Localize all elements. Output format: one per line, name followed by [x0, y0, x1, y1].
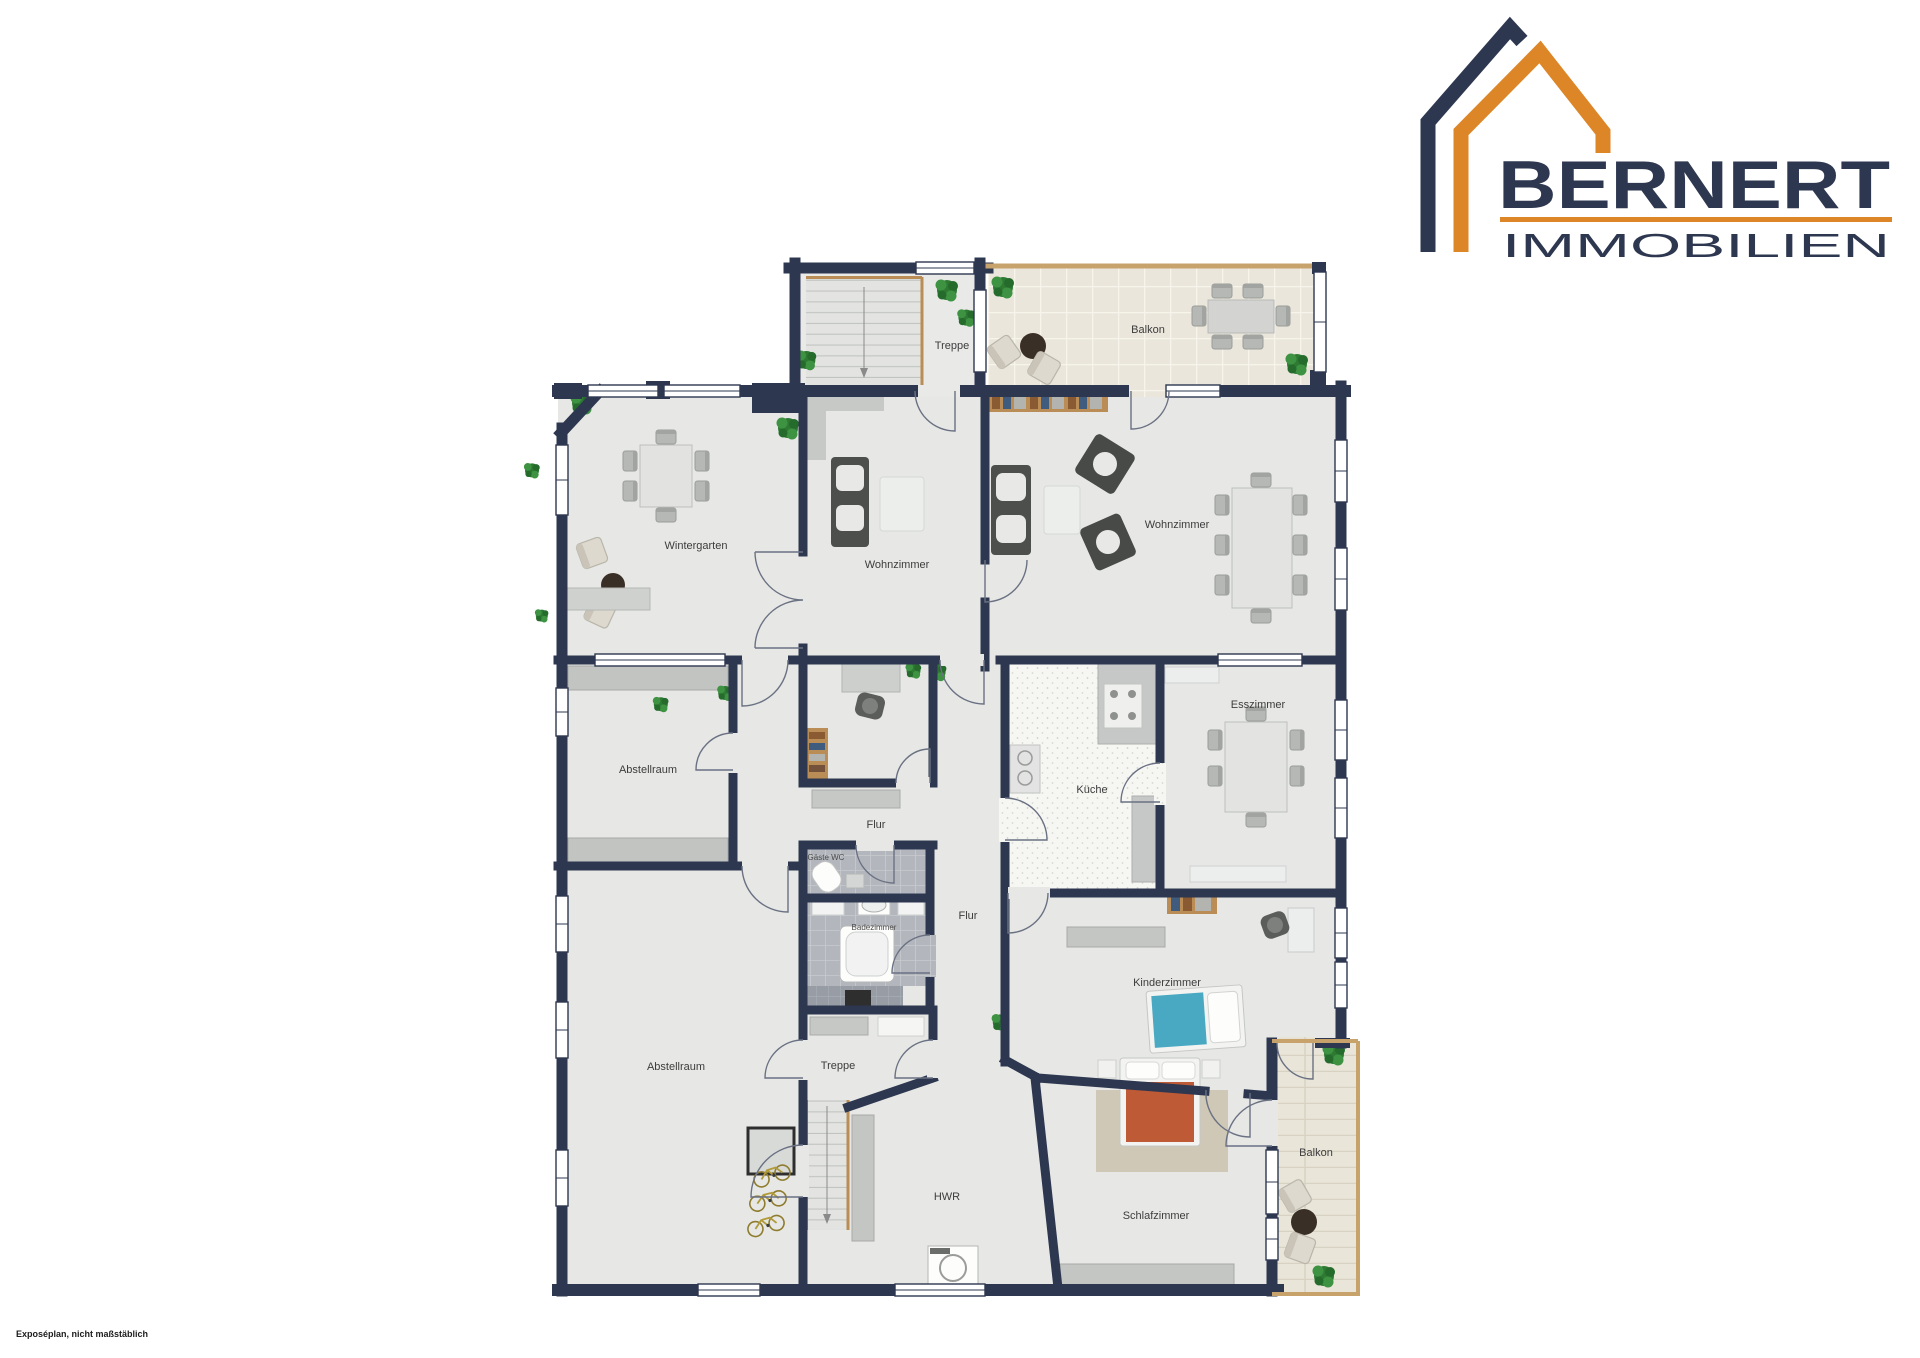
room-label-hwr: HWR	[934, 1191, 960, 1203]
room-label-gaeste-wc: Gäste WC	[808, 853, 845, 862]
brand-logo: BERNERT IMMOBILIEN	[1428, 28, 1892, 264]
room-label-abstellraum-mid: Abstellraum	[619, 764, 677, 776]
plant-icon	[535, 609, 549, 622]
plant-icon	[1313, 1266, 1336, 1288]
plant-icon	[936, 280, 959, 302]
room-label-badezimmer: Badezimmer	[852, 923, 897, 932]
room-label-abstellraum-bottom: Abstellraum	[647, 1061, 705, 1073]
room-label-esszimmer: Esszimmer	[1231, 699, 1286, 711]
plant-icon	[905, 663, 921, 678]
wintergarten-sideboard	[565, 588, 650, 610]
room-label-wohnzimmer-left: Wohnzimmer	[865, 559, 930, 571]
landing-furniture	[810, 1017, 924, 1036]
room-label-balkon-top: Balkon	[1131, 324, 1165, 336]
floorplan-page: BERNERT IMMOBILIEN	[0, 0, 1920, 1358]
storage-shelf	[568, 666, 728, 690]
room-label-treppe-bottom: Treppe	[821, 1060, 855, 1072]
hall-sideboard	[812, 790, 900, 808]
brand-subtitle: IMMOBILIEN	[1502, 227, 1890, 264]
room-label-schlafzimmer: Schlafzimmer	[1123, 1210, 1190, 1222]
room-label-wohnzimmer-right: Wohnzimmer	[1145, 519, 1210, 531]
room-label-wintergarten: Wintergarten	[665, 540, 728, 552]
plant-icon	[777, 418, 800, 440]
room-label-treppe-top: Treppe	[935, 340, 969, 352]
storage-shelf	[568, 838, 728, 862]
room-label-flur-main: Flur	[959, 910, 978, 922]
plant-icon	[957, 309, 975, 327]
brand-name: BERNERT	[1498, 147, 1890, 223]
plant-icon	[653, 697, 669, 712]
plant-icon	[1286, 354, 1309, 376]
plant-icon	[992, 277, 1015, 299]
room-label-kueche: Küche	[1076, 784, 1107, 796]
kids-bed	[1146, 985, 1246, 1054]
room-label-balkon-bottom: Balkon	[1299, 1147, 1333, 1159]
room-label-kinderzimmer: Kinderzimmer	[1133, 977, 1201, 989]
disclaimer-text: Exposéplan, nicht maßstäblich	[16, 1329, 148, 1339]
floor-plan: Treppe Balkon Wintergarten Wohnzimmer Wo…	[524, 262, 1360, 1296]
brand-divider	[1500, 217, 1892, 222]
plant-icon	[524, 463, 540, 478]
room-label-flur-upper: Flur	[867, 819, 886, 831]
